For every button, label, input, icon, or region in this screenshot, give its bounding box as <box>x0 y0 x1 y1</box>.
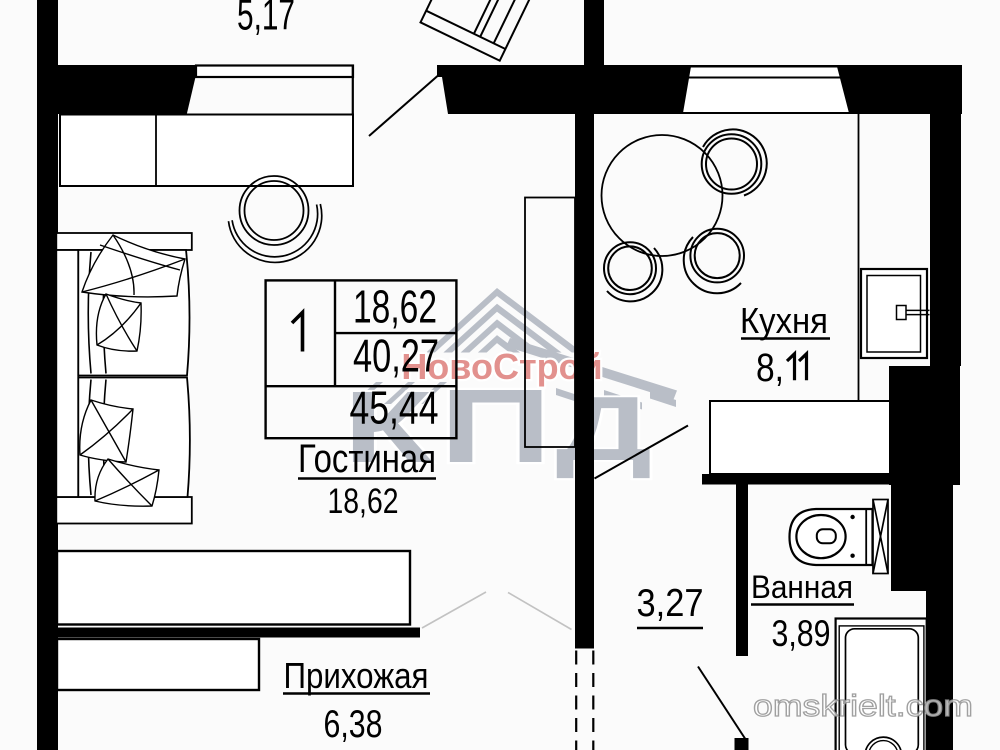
svg-text:3,89: 3,89 <box>772 613 831 654</box>
svg-text:8,: 8, <box>756 346 784 390</box>
svg-text:18,62: 18,62 <box>353 281 437 333</box>
svg-text:18,62: 18,62 <box>328 482 399 521</box>
svg-text:5,17: 5,17 <box>237 0 295 40</box>
svg-text:6,38: 6,38 <box>324 703 383 746</box>
svg-text:3,27: 3,27 <box>637 582 704 625</box>
svg-text:Гостиная: Гостиная <box>298 437 436 481</box>
svg-text:Д: Д <box>556 379 652 480</box>
svg-text:45,44: 45,44 <box>350 382 439 434</box>
svg-text:Кухня: Кухня <box>740 300 828 341</box>
svg-text:40,27: 40,27 <box>353 330 439 382</box>
svg-text:Ванная: Ванная <box>751 569 853 605</box>
svg-text:omskrielt.com: omskrielt.com <box>753 688 973 723</box>
svg-text:Прихожая: Прихожая <box>284 655 429 696</box>
